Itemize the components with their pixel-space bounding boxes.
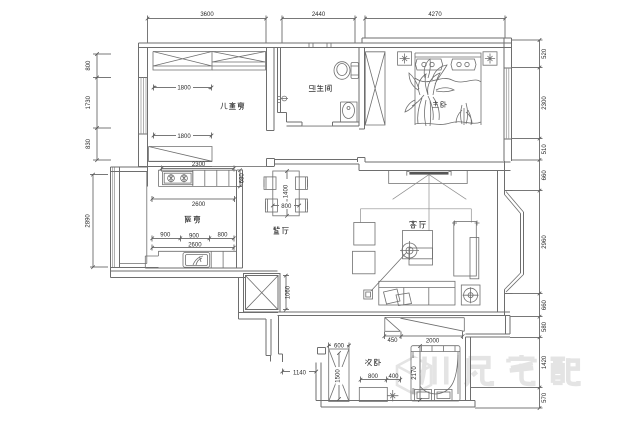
- svg-text:1140: 1140: [293, 370, 307, 376]
- svg-text:900: 900: [189, 234, 200, 240]
- svg-text:800: 800: [368, 374, 379, 380]
- svg-text:520: 520: [542, 48, 548, 59]
- svg-text:2440: 2440: [312, 12, 326, 18]
- svg-text:2600: 2600: [188, 243, 202, 249]
- svg-text:510: 510: [542, 144, 548, 155]
- svg-text:800: 800: [86, 60, 92, 71]
- svg-text:2300: 2300: [192, 162, 206, 168]
- svg-text:1800: 1800: [177, 134, 191, 140]
- svg-text:1500: 1500: [335, 369, 341, 383]
- svg-text:580: 580: [542, 321, 548, 332]
- svg-text:2170: 2170: [412, 366, 418, 380]
- svg-text:600: 600: [334, 343, 345, 349]
- svg-text:1060: 1060: [286, 285, 292, 299]
- svg-text:2960: 2960: [542, 235, 548, 249]
- svg-text:830: 830: [86, 138, 92, 149]
- svg-text:1400: 1400: [284, 184, 290, 198]
- svg-text:4270: 4270: [428, 12, 442, 18]
- svg-text:2000: 2000: [426, 339, 440, 345]
- svg-text:2890: 2890: [86, 214, 92, 228]
- svg-text:800: 800: [217, 233, 228, 239]
- svg-text:570: 570: [542, 392, 548, 403]
- svg-text:400: 400: [388, 374, 399, 380]
- svg-text:900: 900: [160, 233, 171, 239]
- svg-text:1420: 1420: [542, 355, 548, 369]
- svg-text:450: 450: [387, 338, 398, 344]
- svg-text:660: 660: [542, 170, 548, 181]
- svg-text:2600: 2600: [192, 202, 206, 208]
- svg-text:660: 660: [542, 299, 548, 310]
- svg-text:800: 800: [281, 204, 292, 210]
- svg-text:1800: 1800: [177, 86, 191, 92]
- svg-text:1730: 1730: [86, 95, 92, 109]
- svg-text:2300: 2300: [542, 96, 548, 110]
- svg-text:3600: 3600: [200, 12, 214, 18]
- svg-text:680: 680: [240, 173, 246, 184]
